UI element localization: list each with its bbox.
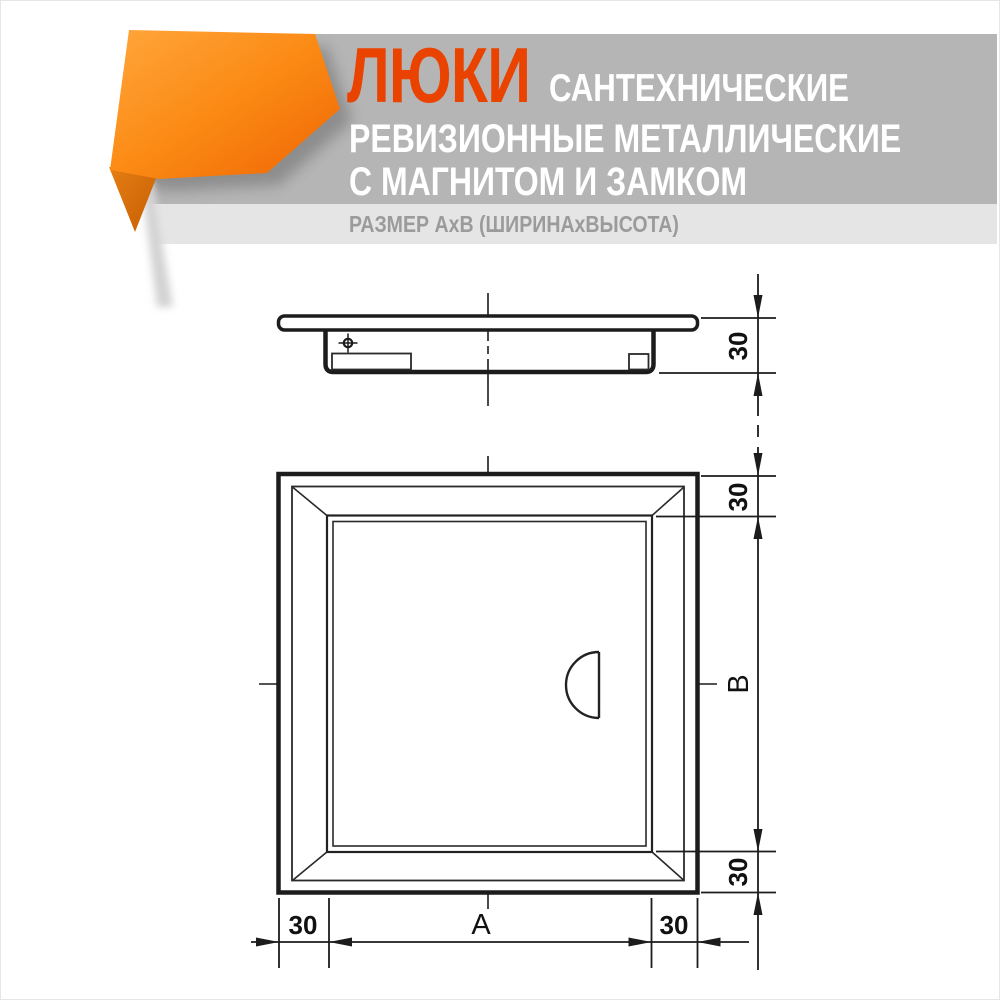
front-view	[259, 456, 717, 909]
side-tray	[326, 329, 654, 372]
lock-block	[629, 354, 649, 370]
dim-frame-top: 30	[723, 483, 753, 512]
technical-drawing: 30 30 В 30 30 А 30	[1, 1, 1000, 1001]
page: ЛЮКИ САНТЕХНИЧЕСКИЕ РЕВИЗИОННЫЕ МЕТАЛЛИЧ…	[0, 0, 1000, 1000]
dim-height-label: В	[723, 674, 755, 693]
datum-target-icon	[339, 334, 358, 353]
dim-frame-left: 30	[289, 910, 318, 940]
side-face-plate	[279, 316, 698, 330]
magnet-block	[332, 354, 411, 370]
dimension-row-bottom: 30 А 30	[251, 898, 749, 968]
dim-frame-bottom: 30	[723, 858, 753, 887]
side-view	[279, 293, 698, 406]
dim-frame-right: 30	[660, 910, 689, 940]
dim-side-thickness: 30	[723, 332, 753, 361]
frame-outer	[279, 474, 698, 893]
dim-width-label: А	[471, 909, 491, 941]
